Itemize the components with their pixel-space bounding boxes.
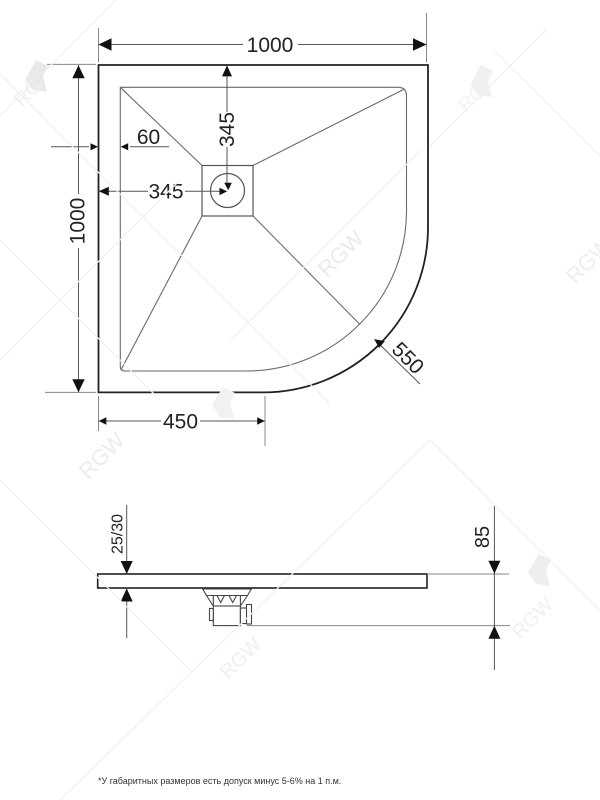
svg-text:550: 550: [387, 338, 428, 379]
svg-text:85: 85: [472, 526, 494, 548]
svg-text:1000: 1000: [67, 198, 90, 245]
svg-text:RGW: RGW: [74, 428, 130, 484]
svg-text:25/30: 25/30: [110, 514, 127, 554]
svg-text:345: 345: [216, 112, 239, 147]
svg-text:RGW: RGW: [561, 233, 600, 289]
svg-text:345: 345: [148, 181, 183, 204]
svg-text:450: 450: [163, 411, 198, 434]
svg-text:1000: 1000: [247, 34, 294, 57]
svg-text:60: 60: [137, 126, 160, 149]
svg-text:RGW: RGW: [508, 593, 558, 643]
svg-text:*У габаритных размеров есть до: *У габаритных размеров есть допуск минус…: [98, 776, 341, 786]
